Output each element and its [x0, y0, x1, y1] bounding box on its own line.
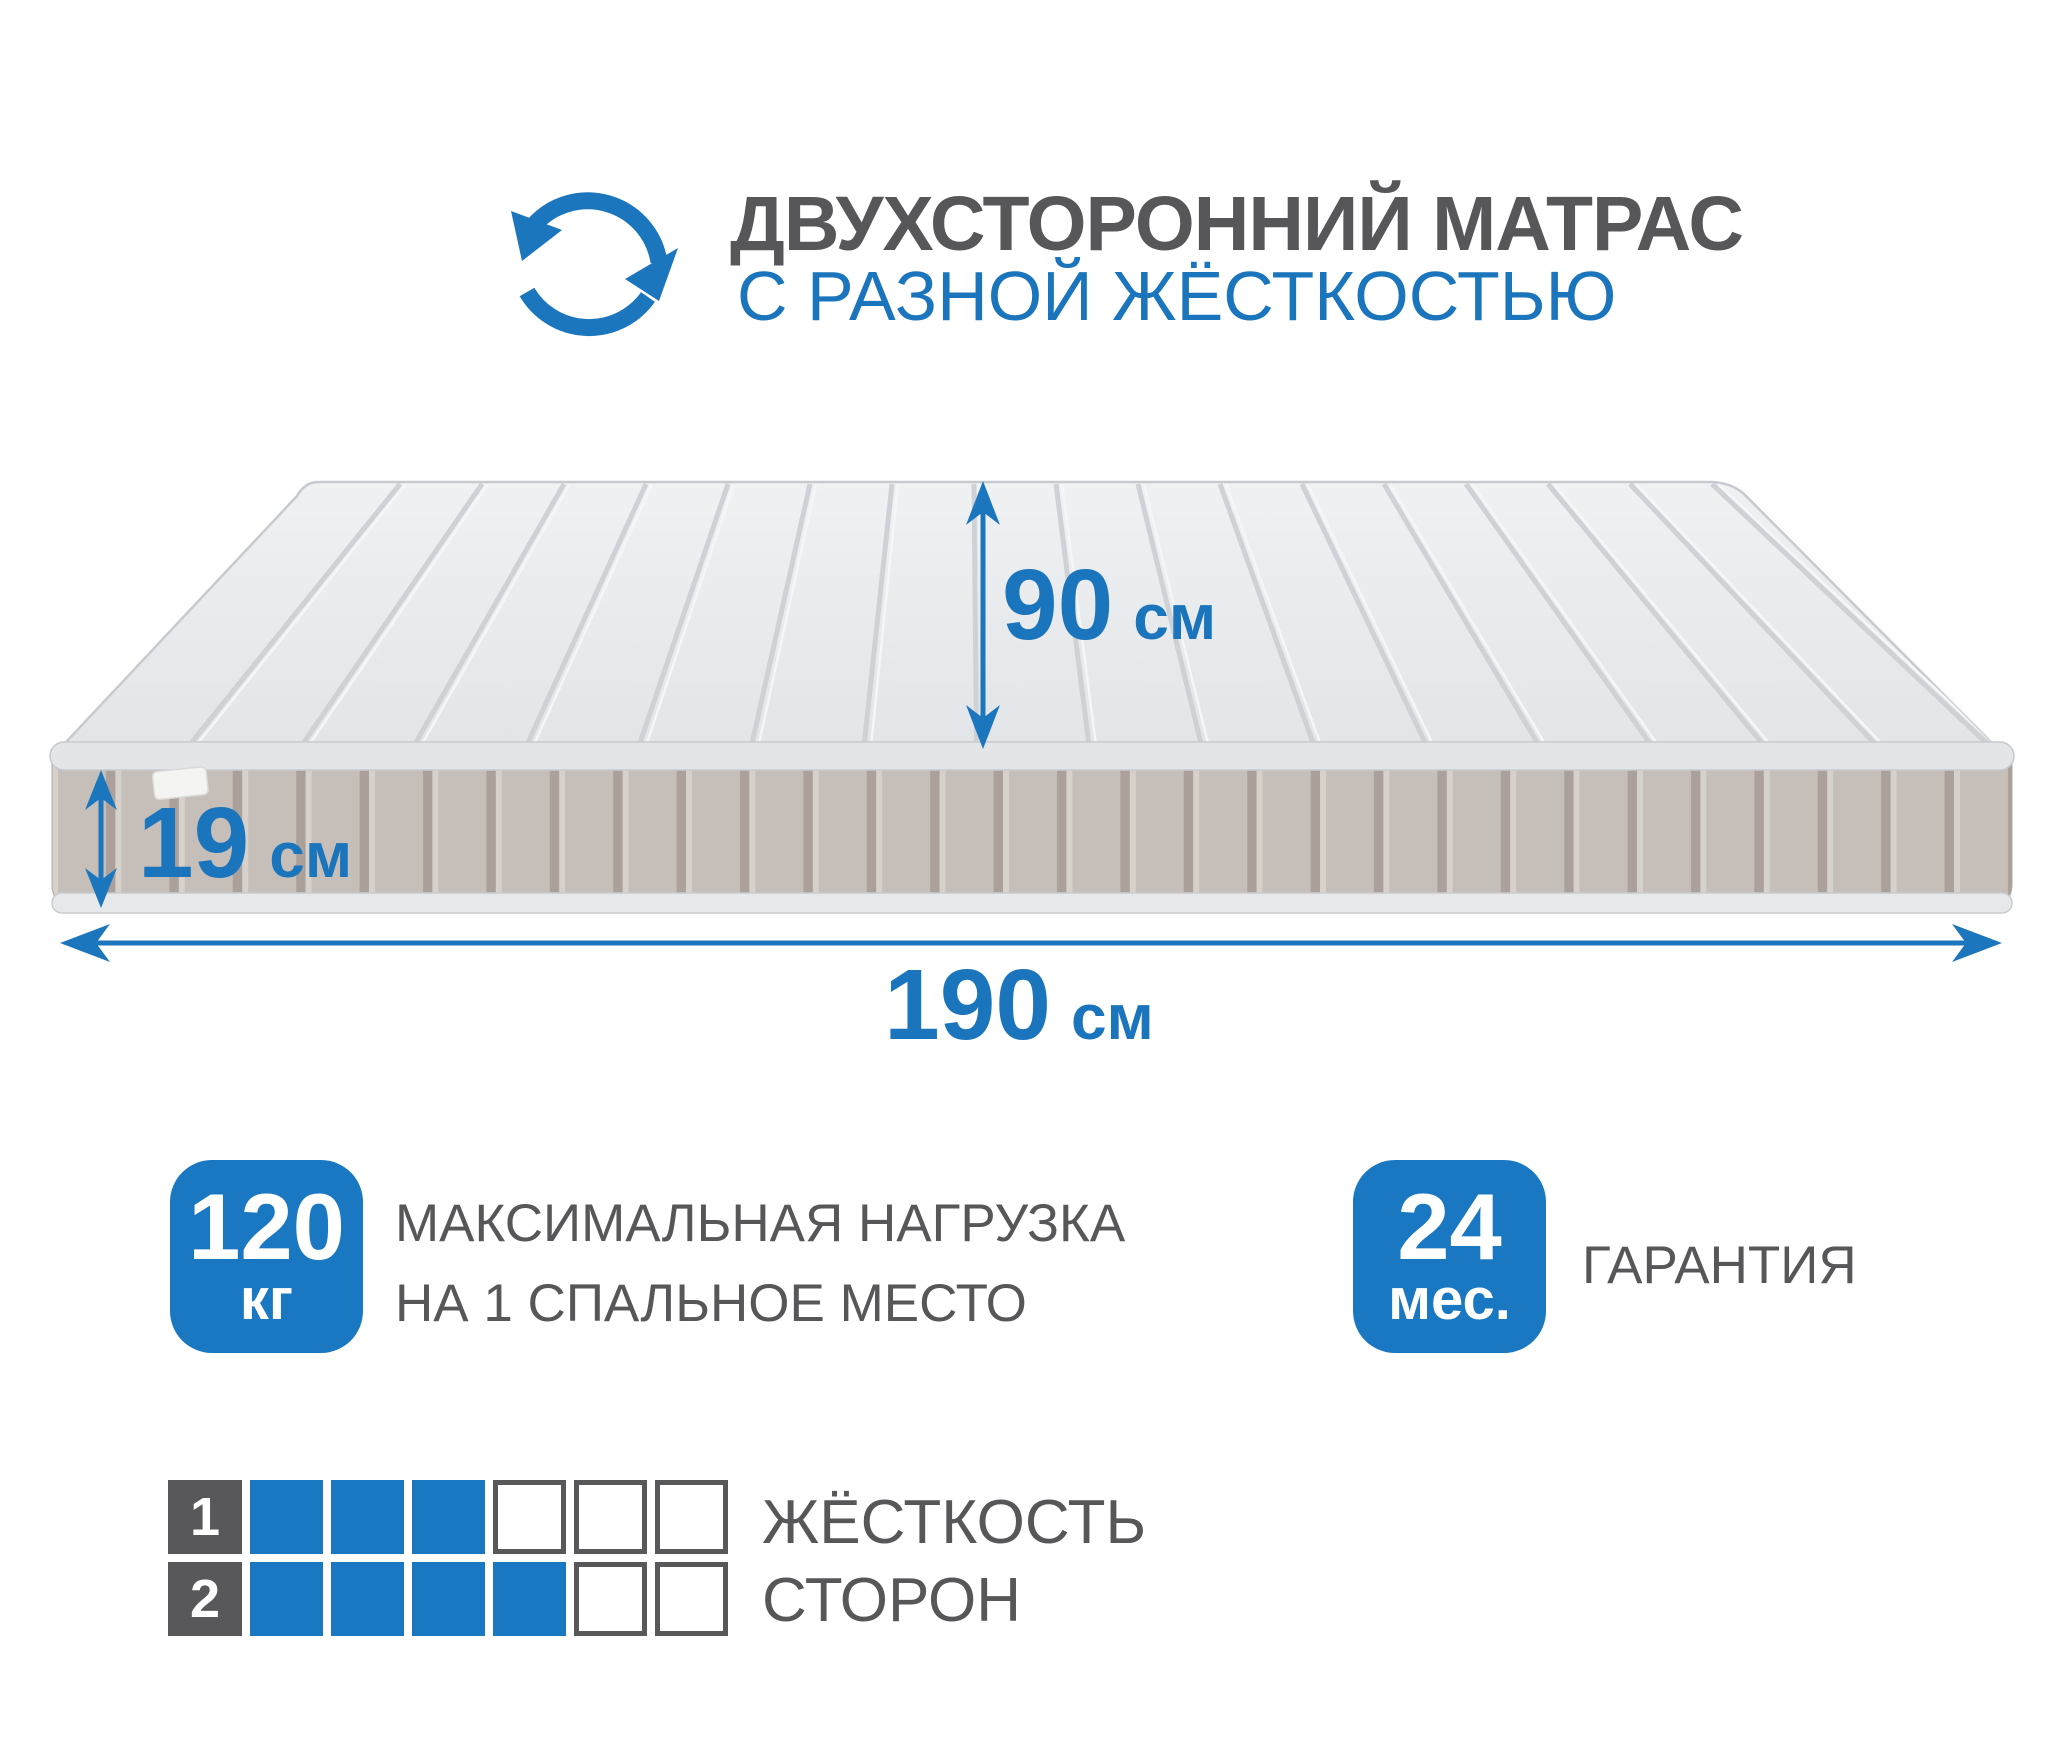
page-subtitle: С РАЗНОЙ ЖЁСТКОСТЬЮ	[737, 256, 1616, 336]
firmness-cell-filled	[412, 1562, 485, 1636]
max-load-badge: 120 кг	[170, 1160, 363, 1353]
firmness-cell-empty	[655, 1562, 728, 1636]
length-unit: см	[1071, 981, 1154, 1053]
firmness-side-number: 1	[168, 1480, 242, 1554]
firmness-cell-filled	[412, 1480, 485, 1554]
firmness-label-line2: СТОРОН	[762, 1562, 1146, 1640]
firmness-cell-empty	[655, 1480, 728, 1554]
max-load-value: 120	[188, 1184, 345, 1270]
firmness-scale: 12	[168, 1480, 728, 1636]
firmness-cell-filled	[493, 1562, 566, 1636]
thickness-dimension-label: 19см	[138, 786, 352, 901]
warranty-unit: мес.	[1388, 1271, 1511, 1329]
firmness-cell-filled	[250, 1562, 323, 1636]
max-load-caption: МАКСИМАЛЬНАЯ НАГРУЗКА НА 1 СПАЛЬНОЕ МЕСТ…	[395, 1184, 1125, 1343]
firmness-cell-filled	[331, 1480, 404, 1554]
mattress-top-piping	[50, 742, 2014, 770]
firmness-cell-empty	[574, 1562, 647, 1636]
height-dimension-label: 90см	[1002, 548, 1216, 663]
height-value: 90	[1002, 549, 1113, 661]
warranty-badge: 24 мес.	[1353, 1160, 1546, 1353]
thickness-value: 19	[138, 787, 249, 899]
length-dimension-label: 190см	[884, 948, 1154, 1063]
max-load-unit: кг	[240, 1271, 293, 1329]
infographic-canvas: ДВУХСТОРОННИЙ МАТРАС С РАЗНОЙ ЖЁСТКОСТЬЮ…	[0, 0, 2048, 1757]
rotate-double-arrows-icon	[511, 201, 678, 328]
firmness-side-number: 2	[168, 1562, 242, 1636]
firmness-label-line1: ЖЁСТКОСТЬ	[762, 1484, 1146, 1562]
max-load-caption-line2: НА 1 СПАЛЬНОЕ МЕСТО	[395, 1264, 1125, 1344]
warranty-value: 24	[1397, 1184, 1502, 1270]
max-load-caption-line1: МАКСИМАЛЬНАЯ НАГРУЗКА	[395, 1184, 1125, 1264]
thickness-unit: см	[269, 819, 352, 891]
warranty-caption: ГАРАНТИЯ	[1582, 1226, 1857, 1306]
firmness-cell-filled	[250, 1480, 323, 1554]
length-value: 190	[884, 949, 1051, 1061]
height-unit: см	[1133, 581, 1216, 653]
firmness-row: 2	[168, 1562, 728, 1636]
firmness-scale-label: ЖЁСТКОСТЬ СТОРОН	[762, 1484, 1146, 1640]
firmness-row: 1	[168, 1480, 728, 1554]
firmness-cell-filled	[331, 1562, 404, 1636]
firmness-cell-empty	[493, 1480, 566, 1554]
firmness-cell-empty	[574, 1480, 647, 1554]
